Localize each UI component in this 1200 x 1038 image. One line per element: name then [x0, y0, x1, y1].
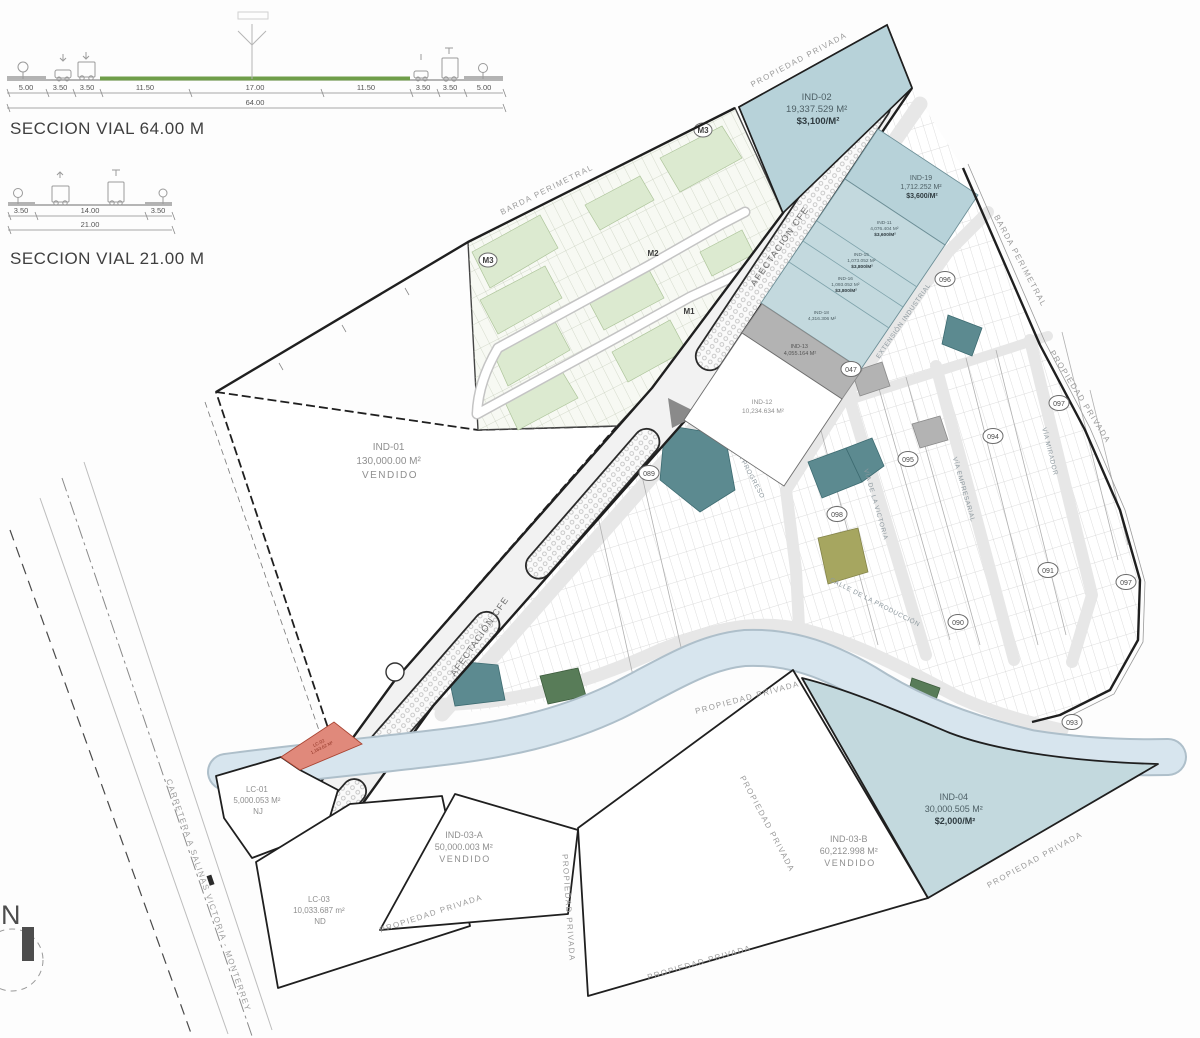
section64-left-shoulder [7, 76, 46, 79]
section21-left-shoulder [8, 202, 35, 205]
dim-value: 5.00 [19, 83, 34, 92]
tree-icon [159, 189, 167, 197]
boundary-ticks [279, 288, 409, 370]
tree-icon [18, 62, 28, 72]
compass-needle [22, 927, 34, 961]
section64-total: 64.00 [246, 98, 265, 107]
dim-value: 3.50 [416, 83, 431, 92]
dim-value: 3.50 [80, 83, 95, 92]
up-arrow-icon [57, 172, 63, 178]
section64-title: SECCION VIAL 64.00 M [10, 119, 205, 138]
road-section-21m: 3.50 14.00 3.50 21.00 SECCION VIAL 21.00… [8, 170, 205, 268]
svg-text:098: 098 [831, 512, 843, 519]
truck-icon [442, 58, 458, 78]
wind-turbine-icon [238, 24, 266, 79]
down-arrow-icon [60, 54, 66, 61]
svg-text:096: 096 [939, 277, 951, 284]
down-arrow-icon [83, 52, 89, 59]
dim-value: 5.00 [477, 83, 492, 92]
sign-post-icon [112, 170, 120, 176]
station-097b: 097 [1116, 575, 1136, 590]
zone-m2: M2 [647, 249, 659, 258]
tree-icon [479, 64, 488, 73]
station-047: 047 [841, 362, 861, 377]
highway-edge-dashed [10, 530, 192, 1036]
zone-m1: M1 [683, 307, 695, 316]
north-label: N [1, 900, 21, 930]
station-094: 094 [983, 429, 1003, 444]
road-section-64m: 5.00 3.50 3.50 11.50 17.00 11.50 3.50 3.… [7, 12, 506, 138]
highway-edge-line [84, 462, 272, 1030]
svg-text:089: 089 [643, 471, 655, 478]
section64-dim-values: 5.00 3.50 3.50 11.50 17.00 11.50 3.50 3.… [19, 83, 492, 92]
dim-value: 11.50 [357, 83, 375, 92]
dim-value: 3.50 [53, 83, 68, 92]
truck-icon [78, 62, 95, 77]
station-096: 096 [935, 272, 955, 287]
highway-edge-line [40, 498, 228, 1034]
section64-vehicle-glyphs [18, 12, 488, 81]
svg-text:097: 097 [1120, 580, 1132, 587]
truck-icon [52, 186, 69, 202]
section21-vehicle-glyphs [14, 170, 168, 205]
svg-text:090: 090 [952, 620, 964, 627]
zone-m3: M3 [697, 126, 709, 135]
section21-right-shoulder [145, 202, 172, 205]
site-plan-sheet: 5.00 3.50 3.50 11.50 17.00 11.50 3.50 3.… [0, 0, 1200, 1038]
svg-text:094: 094 [987, 434, 999, 441]
bus-icon [108, 182, 124, 202]
tree-icon [14, 189, 23, 198]
dim-value: 14.00 [81, 206, 100, 215]
station-089: 089 [639, 466, 659, 481]
svg-text:097: 097 [1053, 401, 1065, 408]
dim-value: 3.50 [151, 206, 166, 215]
highway-carretera: CARRETERA A SALINAS VICTORIA - MONTERREY [10, 462, 272, 1036]
dim-value: 3.50 [14, 206, 29, 215]
turbine-tag [238, 12, 268, 19]
svg-text:093: 093 [1066, 720, 1078, 727]
station-090: 090 [948, 615, 968, 630]
section64-green-median [100, 77, 410, 81]
svg-text:095: 095 [902, 457, 914, 464]
section21-total: 21.00 [81, 220, 100, 229]
compass-circle [0, 929, 43, 991]
station-093: 093 [1062, 715, 1082, 730]
north-compass: N [0, 900, 43, 991]
dim-value: 11.50 [136, 83, 154, 92]
dim-value: 3.50 [443, 83, 458, 92]
map-canvas: 5.00 3.50 3.50 11.50 17.00 11.50 3.50 3.… [0, 0, 1200, 1038]
dim-value: 17.00 [246, 83, 265, 92]
section21-title: SECCION VIAL 21.00 M [10, 249, 205, 268]
station-095: 095 [898, 452, 918, 467]
svg-text:047: 047 [845, 367, 857, 374]
station-091: 091 [1038, 563, 1058, 578]
station-098: 098 [827, 507, 847, 522]
station-097: 097 [1049, 396, 1069, 411]
svg-text:091: 091 [1042, 568, 1054, 575]
car-icon [55, 70, 71, 78]
zone-m3: M3 [482, 256, 494, 265]
cul-de-sac [386, 663, 404, 681]
